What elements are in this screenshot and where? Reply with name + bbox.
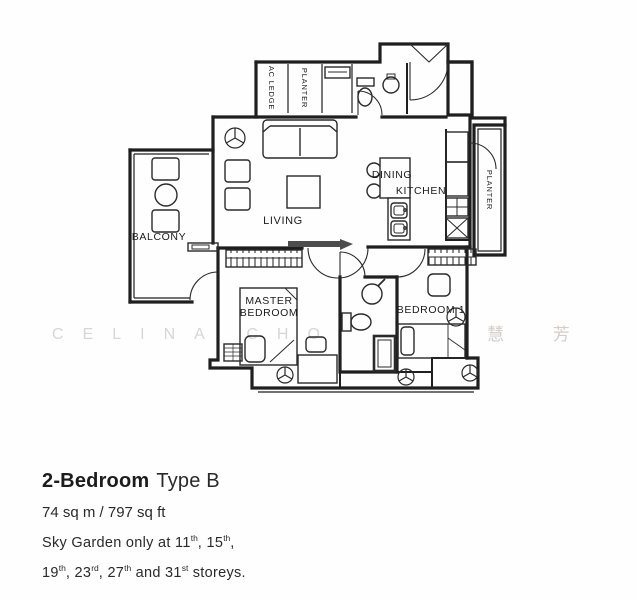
fan-icon [225, 128, 245, 148]
toilet-icon [342, 313, 371, 331]
balcony-chair-icon [152, 210, 179, 232]
sky2-text: and 31 [131, 565, 181, 581]
sky2-text: 19 [42, 565, 59, 581]
sofa-icon [263, 120, 337, 158]
bed-icon [398, 324, 465, 358]
bedroom1-door-arc [397, 249, 425, 277]
planter-top-label: PLANTER [300, 68, 309, 108]
sky-garden-line1: Sky Garden only at 11th, 15th, [42, 533, 246, 551]
watermark-latin: CELINA CHO [52, 326, 339, 343]
desk-icon [298, 355, 337, 383]
watermark: CELINA CHO 慧 芳 [52, 325, 592, 344]
kitchen-counter-icon [388, 198, 410, 240]
floorplan-page: CELINA CHO 慧 芳 [0, 0, 637, 600]
balcony-chair-icon [152, 158, 179, 180]
watermark-cjk: 慧 芳 [487, 325, 592, 344]
hall-double-door-arc [308, 248, 368, 278]
master-door-arc [190, 272, 218, 300]
ac-ledge-label: AC LEDGE [267, 66, 276, 110]
ordinal-sup: th [59, 563, 66, 573]
plan-title-type: Type B [156, 470, 219, 492]
plan-area-text: 74 sq m / 797 sq ft [42, 504, 246, 521]
dining-chair-icon [367, 184, 381, 198]
ordinal-sup: rd [91, 563, 99, 573]
sky1-text: , [230, 535, 234, 551]
armchair-icon [225, 188, 250, 210]
room-labels: BALCONY LIVING DINING KITCHEN MASTER BED… [132, 66, 494, 319]
sky-garden-line2: 19th, 23rd, 27th and 31st storeys. [42, 563, 246, 581]
balcony-label: BALCONY [132, 231, 186, 243]
basin-icon [362, 279, 385, 304]
fan-icon [277, 367, 293, 383]
floor-plan: CELINA CHO 慧 芳 [0, 0, 637, 455]
sky2-text: , 27 [99, 565, 124, 581]
wardrobe-icon [428, 249, 476, 265]
fan-icon [398, 369, 414, 385]
master-bedroom-label-line2: BEDROOM [240, 307, 298, 319]
sky1-text: Sky Garden only at 11 [42, 535, 191, 551]
hob-icon [446, 218, 468, 238]
armchair-icon [225, 160, 250, 182]
coffee-table-icon [287, 176, 320, 208]
fan-icon [462, 365, 478, 381]
ordinal-sup: th [191, 533, 198, 543]
kitchen-tall-units [446, 132, 468, 196]
plan-title-name: 2-Bedroom [42, 470, 149, 492]
basin-icon [383, 74, 399, 93]
side-table-icon [428, 274, 450, 296]
kitchen-label: KITCHEN [396, 185, 446, 197]
wardrobe-icon [226, 250, 302, 267]
shaft-symbol [410, 44, 448, 62]
plan-title: 2-BedroomType B [42, 470, 246, 493]
oven-icon [446, 198, 468, 216]
dining-label: DINING [372, 169, 412, 181]
master-bedroom-label-line1: MASTER [245, 295, 292, 307]
balcony-pocket-inner [192, 245, 209, 249]
sky1-text: , 15 [198, 535, 223, 551]
bedroom1-label: BEDROOM 1 [397, 304, 465, 316]
sky2-text: , 23 [66, 565, 91, 581]
balcony-table-icon [155, 184, 177, 206]
shower-icon [374, 336, 395, 371]
sky2-text: storeys. [188, 565, 246, 581]
living-label: LIVING [263, 215, 303, 227]
caption-block: 2-BedroomType B 74 sq m / 797 sq ft Sky … [42, 470, 246, 581]
planter-right-label: PLANTER [485, 170, 494, 210]
